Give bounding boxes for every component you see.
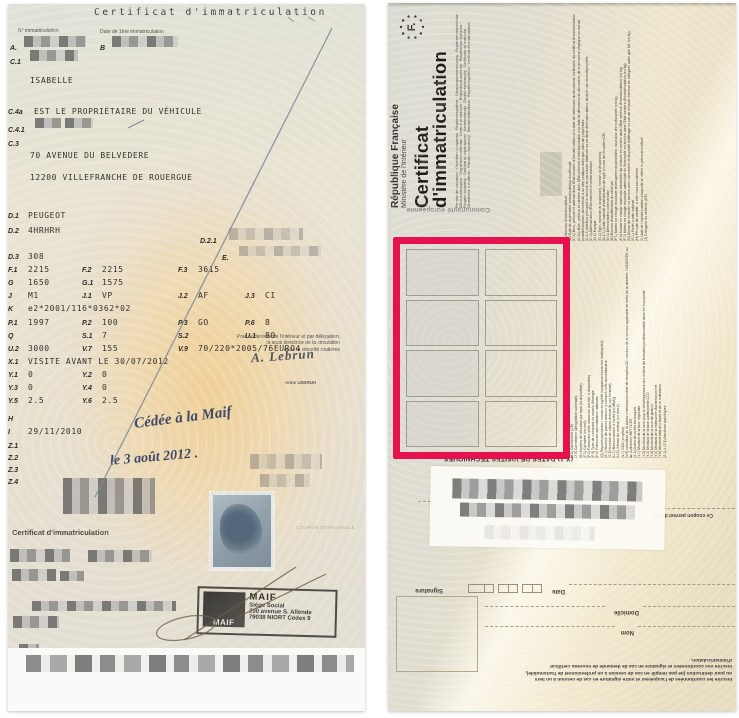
field-f3: F.33615 (178, 259, 220, 277)
legend-entry: (J) Catégorie du véhicule (CE) (644, 7, 648, 241)
date-boxes (468, 584, 542, 593)
title-translations: Permiso de circulación · Osvědčení o reg… (455, 8, 471, 208)
signature-box (396, 596, 478, 672)
field-address2: 12200 VILLEFRANCHE DE ROUERGUE (30, 167, 193, 185)
handwritten-note-line1: Cédée à la Maif (133, 404, 232, 433)
form-line (643, 606, 735, 607)
redacted-block (24, 36, 86, 47)
redacted-block (239, 246, 321, 256)
label-immat-no: N° immatriculation (18, 28, 59, 34)
redacted-block (10, 549, 70, 562)
redacted-mrz-row (10, 678, 354, 699)
republic-label: République Française (390, 8, 401, 208)
fiscal-stamp (210, 492, 274, 570)
grid-cell (485, 300, 558, 347)
ministry-label: Ministère de l'Intérieur (401, 8, 408, 208)
grid-cell (406, 249, 479, 296)
legend-entry: (C.4a) Nom, prénom et adresse dans l'Éta… (577, 7, 585, 241)
redacted-block (250, 454, 322, 469)
community-label: Communauté européenne (398, 206, 490, 213)
official-signature: A. Lebrun (251, 346, 316, 366)
form-line (485, 606, 605, 607)
highlight-rectangle (393, 237, 570, 459)
instruction-line: d'immatriculation. (480, 655, 732, 661)
handwritten-note-line2: le 3 août 2012 . (109, 446, 198, 470)
redacted-mrz-row (26, 655, 354, 672)
stamp-artwork (220, 504, 262, 556)
date-box (522, 584, 542, 593)
legend-entry: (V.9) Indication de la classe environnem… (625, 246, 633, 458)
technical-visit-grid (406, 249, 557, 447)
machine-readable-strip (8, 648, 365, 711)
redacted-block (540, 152, 562, 196)
legend-entry: (C.1) Nom, prénom et adresse dans l'État… (572, 7, 576, 241)
redacted-block (32, 601, 176, 611)
coupon-instructions: Inscrire les coordonnées de l'acquéreur … (480, 655, 732, 681)
redacted-block (229, 228, 303, 240)
redacted-block (260, 474, 310, 487)
redacted-block (30, 50, 78, 61)
field-address1: 70 AVENUE DU BELVEDERE (30, 145, 149, 163)
coupon-section-label: Certificat d'immatriculation (12, 528, 109, 537)
redacted-block (35, 118, 61, 128)
redacted-block (63, 478, 155, 514)
signatory-name: Anne LEBRUN (285, 380, 316, 385)
form-line (569, 584, 735, 585)
coupon-detachable-label: COUPON DÉTACHABLE (296, 525, 355, 530)
maif-stamp-line: 79038 NIORT Cedex 9 (249, 615, 312, 623)
form-line (638, 626, 735, 627)
grid-cell (406, 401, 479, 448)
certificate-front-page: Certificat d'immatriculation N° immatric… (8, 4, 365, 711)
field-d2: D.24HRHRH (8, 220, 61, 238)
domicile-label: Domicile (614, 609, 639, 615)
field-c3: C.3 (8, 133, 28, 151)
redacted-block (88, 550, 152, 562)
grid-cell (485, 350, 558, 397)
redacted-block (13, 616, 59, 628)
nom-label: Nom (621, 629, 634, 635)
redacted-block (112, 36, 178, 47)
field-j2: J.2AF (178, 285, 209, 303)
field-firstname: ISABELLE (30, 70, 73, 88)
date-box (498, 584, 518, 593)
signature-label: Signature (415, 587, 443, 593)
maif-stamp: MAIF MAIF Siège Social 200 avenue S. All… (196, 586, 337, 638)
field-j3: J.3CI (245, 285, 276, 303)
grid-cell (406, 300, 479, 347)
label-first-date: Date de 1ère immatriculation (100, 29, 164, 35)
grid-cell (406, 350, 479, 397)
certificate-back-page: F. République Française Ministère de l'I… (388, 3, 736, 711)
date-label: Date (552, 588, 565, 594)
field-y6: Y.62.5 (82, 390, 118, 408)
legend-entry: (Z.1) à (Z.4) Mentions spécifiques (663, 246, 667, 458)
field-c4a: C.4aEST LE PROPRIÉTAIRE DU VÉHICULE (8, 101, 202, 119)
field-z4: Z.4 (8, 471, 28, 489)
field-d21: D.2.1 (200, 230, 226, 248)
instruction-line: inscrire vos coordonnées et signature en… (480, 662, 732, 668)
redacted-block (60, 571, 84, 581)
redacted-block (65, 118, 93, 128)
date-box (468, 584, 494, 593)
transfer-coupon: Inscrire les coordonnées de l'acquéreur … (392, 555, 735, 703)
grid-cell (485, 401, 558, 448)
ghost-text (484, 525, 594, 541)
redacted-block (12, 569, 56, 581)
field-y5: Y.52.5 (8, 390, 44, 408)
back-title-line2: d'immatriculation (431, 8, 449, 208)
form-line (485, 626, 615, 627)
instruction-line: ou pour destruction (ne pas remplir en c… (480, 668, 732, 674)
field-c1: C.1 (10, 51, 30, 69)
redacted-sticker-band (429, 466, 665, 550)
front-title: Certificat d'immatriculation (94, 7, 327, 18)
maif-logo: MAIF (203, 591, 246, 627)
redacted-block (460, 502, 635, 519)
redacted-block (452, 478, 642, 501)
grid-cell (485, 249, 558, 296)
instruction-line: Inscrire les coordonnées de l'acquéreur … (480, 675, 732, 681)
